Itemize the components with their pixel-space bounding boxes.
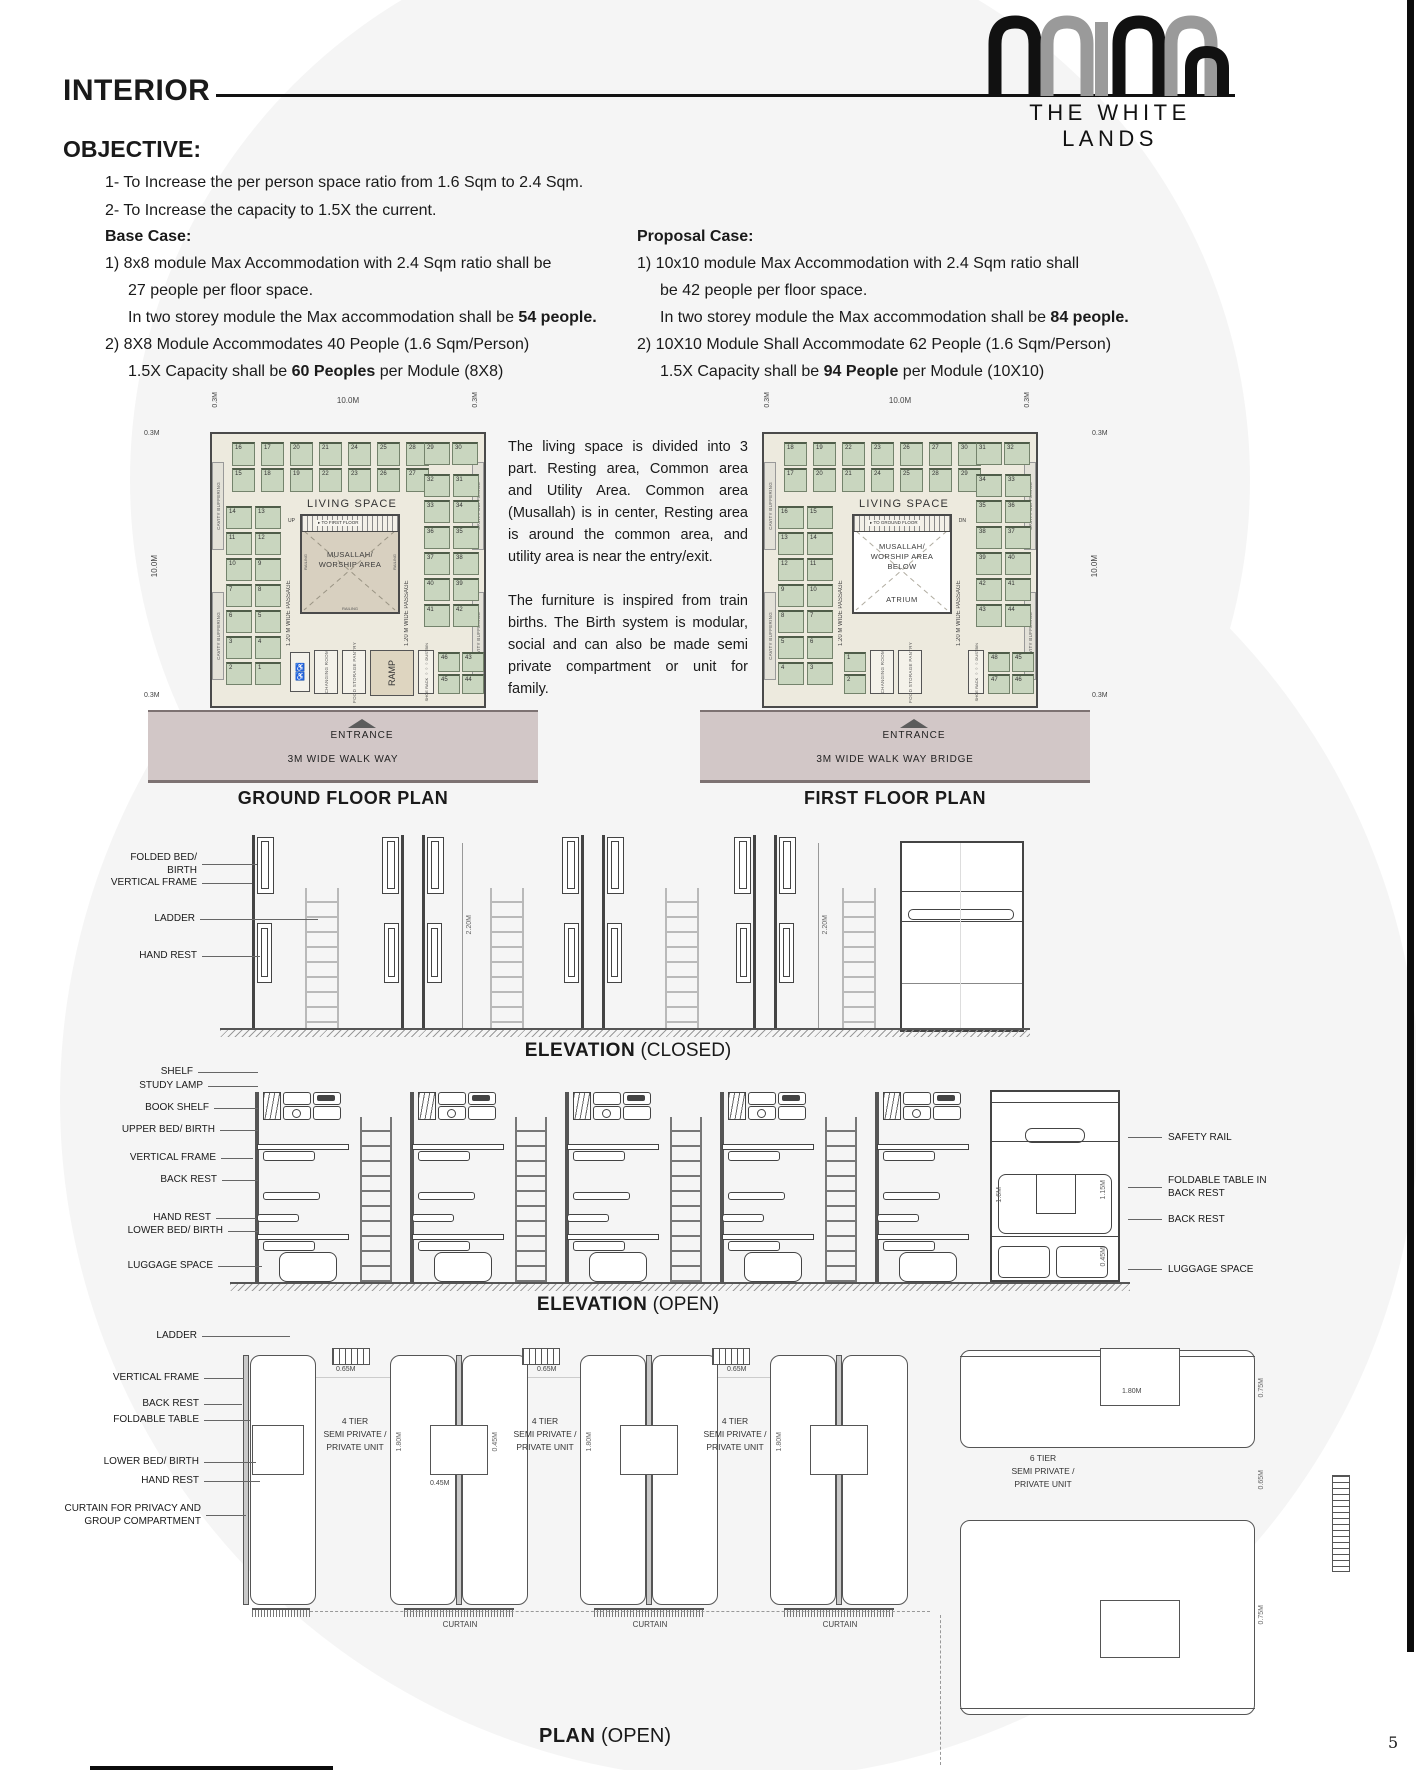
callout-hand-rest: HAND REST — [153, 1212, 211, 1225]
bed-unit: 41 — [1005, 578, 1031, 601]
bed-unit: 10 — [807, 584, 833, 607]
callout-ladder: LADDER — [156, 1330, 197, 1343]
passage-label: 1.20 M WIDE PASSAGE — [956, 526, 962, 646]
bed-unit: 20 — [290, 442, 313, 466]
bed-unit: 31 — [976, 442, 1002, 465]
bed-unit: 21 — [842, 468, 865, 492]
dim-label: 10.0M — [150, 555, 159, 577]
entrance-arrow-icon — [900, 719, 928, 728]
dim-label: 1.80M — [1122, 1388, 1141, 1395]
description-text: The living space is divided into 3 part.… — [508, 436, 748, 700]
upper-bed — [722, 1144, 814, 1150]
callout-upper-bed: UPPER BED/ BIRTH — [122, 1124, 215, 1137]
bed-unit: 18 — [784, 442, 807, 466]
atrium-label: ATRIUM — [854, 595, 950, 604]
bed-unit: 19 — [813, 442, 836, 466]
dim-label: 0.45M — [492, 1432, 499, 1451]
berth-plan — [842, 1355, 908, 1605]
bed-unit: 21 — [319, 442, 342, 466]
dim-label: 2.20M — [822, 915, 829, 934]
ladder-plan — [712, 1348, 750, 1365]
bed-unit: 32 — [424, 474, 450, 497]
dim-label: 0.65M — [336, 1366, 355, 1373]
walkway-label: 3M WIDE WALK WAY — [148, 754, 538, 765]
dim-label: 10.0M — [1090, 555, 1099, 577]
stair-direction: DN — [959, 518, 966, 524]
bed-unit: 13 — [778, 532, 804, 555]
bed-unit: 45 — [438, 674, 460, 694]
bed-unit: 9 — [255, 558, 281, 581]
dim-label: 0.65M — [537, 1366, 556, 1373]
base-case-line3: In two storey module the Max accommodati… — [128, 309, 597, 327]
book-shelf — [263, 1092, 281, 1120]
entrance-label: ENTRANCE — [282, 730, 442, 741]
bed-unit: 45 — [1012, 652, 1034, 672]
railing-label: RAILING — [303, 554, 308, 570]
bed-unit: 15 — [232, 468, 255, 492]
bed-unit: 24 — [348, 442, 371, 466]
proposal-case-line2: be 42 people per floor space. — [660, 282, 867, 300]
callout-folded-bed: FOLDED BED/ BIRTH — [110, 852, 197, 877]
back-rest — [883, 1192, 940, 1200]
back-rest — [263, 1192, 320, 1200]
lower-bed — [722, 1234, 814, 1240]
cavity-buffer: CAVITY BUFFERING — [212, 462, 224, 550]
bed-unit: 23 — [348, 468, 371, 492]
bed-unit: 6 — [226, 610, 252, 633]
dim-label: 0.3M — [764, 392, 771, 408]
dim-label: 1.80M — [396, 1432, 403, 1451]
closed-bunk-post — [590, 835, 626, 1028]
bed-unit: 38 — [976, 526, 1002, 549]
berth-plan — [770, 1355, 836, 1605]
proposal-case-line4: 2) 10X10 Module Shall Accommodate 62 Peo… — [637, 336, 1111, 354]
ladder — [825, 1117, 857, 1282]
bed-unit: 17 — [784, 468, 807, 492]
proposal-case-heading: Proposal Case: — [637, 228, 753, 246]
ramp: RAMP — [370, 650, 414, 696]
bed-unit: 27 — [929, 442, 952, 466]
bed-unit: 44 — [1005, 604, 1031, 627]
dim-label: 0.3M — [144, 692, 160, 699]
dim-label: 0.3M — [1092, 430, 1108, 437]
bed-column-right: 323133343635373840394142 — [424, 474, 479, 627]
bed-unit: 37 — [1005, 526, 1031, 549]
walkway-band: ENTRANCE 3M WIDE WALK WAY BRIDGE — [700, 710, 1090, 783]
bed-unit: 5 — [778, 636, 804, 659]
first-floor-plan: 0.3M 10.0M 0.3M 0.3M 10.0M 0.3M CAVITY B… — [700, 390, 1100, 835]
living-space-label: LIVING SPACE — [824, 498, 984, 510]
lower-bed — [412, 1234, 504, 1240]
food-storage-pantry: FOOD STORAGE PANTRY — [342, 650, 366, 694]
dim-label: 0.65M — [727, 1366, 746, 1373]
bed-column-left: 1413111210978653421 — [226, 506, 281, 685]
ladder — [515, 1117, 547, 1282]
changing-room: CHANGING ROOM — [314, 650, 338, 694]
mina-logo-icon — [985, 12, 1235, 96]
lower-bed — [877, 1234, 969, 1240]
bed-unit: 40 — [1005, 552, 1031, 575]
berth-plan — [652, 1355, 718, 1605]
dim-label: 10.0M — [790, 396, 1010, 405]
luggage-box — [434, 1252, 492, 1282]
bed-unit: 1 — [844, 652, 866, 672]
bed-unit: 14 — [807, 532, 833, 555]
living-space-label: LIVING SPACE — [272, 498, 432, 510]
proposal-case-line5: 1.5X Capacity shall be 94 People per Mod… — [660, 363, 1044, 381]
bed-unit: 3 — [226, 636, 252, 659]
curtain-label: CURTAIN — [610, 1620, 690, 1629]
bed-unit: 34 — [453, 500, 479, 523]
ground-hatch — [220, 1030, 1030, 1037]
musallah-area: TO FIRST FLOOR UP MUSALLAH/ WORSHIP AREA… — [300, 514, 400, 614]
bed-unit: 2 — [844, 674, 866, 694]
bed-pair: 4546 — [1012, 652, 1034, 694]
bed-column-right: 343335363837394042414344 — [976, 474, 1031, 627]
elevation-open-title: ELEVATION (OPEN) — [110, 1294, 1146, 1316]
bed-unit: 36 — [1005, 500, 1031, 523]
bed-unit: 8 — [255, 584, 281, 607]
food-storage-pantry: FOOD STORAGE PANTRY — [898, 650, 922, 694]
ladder-plan — [522, 1348, 560, 1365]
bed-unit: 39 — [453, 578, 479, 601]
unit-4-tier-label: 4 TIERSEMI PRIVATE /PRIVATE UNIT — [318, 1415, 392, 1453]
bed-pair: 4344 — [462, 652, 484, 694]
lower-bed — [567, 1234, 659, 1240]
bed-unit: 36 — [424, 526, 450, 549]
ladder-plan — [332, 1348, 370, 1365]
proposal-case-line3: In two storey module the Max accommodati… — [660, 309, 1129, 327]
elevation-closed-drawing: FOLDED BED/ BIRTH VERTICAL FRAME LADDER … — [110, 835, 1350, 1070]
callout-curtain: CURTAIN FOR PRIVACY ANDGROUP COMPARTMENT — [64, 1503, 201, 1528]
entrance-label: ENTRANCE — [834, 730, 994, 741]
objective-heading: OBJECTIVE: — [63, 136, 201, 163]
bed-unit: 7 — [226, 584, 252, 607]
plan-open-drawing: LADDER VERTICAL FRAME BACK REST FOLDABLE… — [60, 1320, 1410, 1768]
curtain-label: CURTAIN — [420, 1620, 500, 1629]
bed-unit: 46 — [438, 652, 460, 672]
bed-unit: 26 — [377, 468, 400, 492]
closed-cabinet-module — [900, 841, 1024, 1032]
bunk-module-open — [410, 1092, 506, 1282]
dim-label: 0.45M — [1100, 1247, 1107, 1266]
brand-tagline: THE WHITE LANDS — [985, 100, 1235, 152]
bed-pair: 4847 — [988, 652, 1010, 694]
bed-unit: 32 — [1004, 442, 1030, 465]
bed-pair: 12 — [844, 652, 866, 694]
callout-lower-bed: LOWER BED/ BIRTH — [128, 1225, 223, 1238]
bed-unit: 39 — [976, 552, 1002, 575]
stair-direction: UP — [288, 518, 295, 524]
upper-bed — [412, 1144, 504, 1150]
bed-unit: 26 — [900, 442, 923, 466]
dim-label: 0.3M — [1024, 392, 1031, 408]
shoe-rack-dustbin: SHOE RACK ○○○ DUSTBIN — [968, 650, 984, 694]
callout-shelf: SHELF — [161, 1066, 193, 1079]
callout-foldable-table: FOLDABLE TABLE IN BACK REST — [1168, 1174, 1288, 1200]
bunk-module-open — [720, 1092, 816, 1282]
passage-label: 1.20 M WIDE PASSAGE — [838, 526, 844, 646]
back-rest — [418, 1192, 475, 1200]
ground-hatch — [230, 1284, 1130, 1291]
dim-label: 0.65M — [1258, 1470, 1265, 1489]
callout-back-rest: BACK REST — [142, 1398, 199, 1411]
railing-label: RAILING — [302, 606, 398, 611]
bunk-module-open — [255, 1092, 351, 1282]
right-edge-bar — [1407, 0, 1414, 1652]
unit-6-tier-label: 6 TIERSEMI PRIVATE /PRIVATE UNIT — [988, 1452, 1098, 1490]
dim-label: 0.3M — [472, 392, 479, 408]
bed-unit: 4 — [255, 636, 281, 659]
bed-unit: 23 — [871, 442, 894, 466]
bed-unit: 17 — [261, 442, 284, 466]
hand-rest — [412, 1214, 454, 1222]
unit-4-tier-label: 4 TIERSEMI PRIVATE /PRIVATE UNIT — [508, 1415, 582, 1453]
callout-foldable-table: FOLDABLE TABLE — [113, 1414, 199, 1427]
foldable-table — [1100, 1348, 1180, 1406]
bed-unit: 1 — [255, 662, 281, 685]
foldable-table — [810, 1425, 868, 1475]
stair-label: TO FIRST FLOOR — [316, 520, 361, 526]
bed-unit: 12 — [255, 532, 281, 555]
dim-label: 1.80M — [586, 1432, 593, 1451]
callout-luggage-space: LUGGAGE SPACE — [128, 1260, 213, 1273]
bed-unit: 5 — [255, 610, 281, 633]
bed-unit: 8 — [778, 610, 804, 633]
closed-bunk-post — [410, 835, 446, 1028]
bed-unit: 33 — [1005, 474, 1031, 497]
ladder — [842, 888, 876, 1028]
bed-unit: 12 — [778, 558, 804, 581]
passage-label: 1.20 M WIDE PASSAGE — [404, 526, 410, 646]
elevation-open-drawing: SHELF STUDY LAMP BOOK SHELF UPPER BED/ B… — [110, 1062, 1410, 1312]
bed-unit: 42 — [453, 604, 479, 627]
bed-unit: 4 — [778, 662, 804, 685]
book-shelf — [573, 1092, 591, 1120]
bed-unit: 40 — [424, 578, 450, 601]
callout-study-lamp: STUDY LAMP — [139, 1080, 203, 1093]
bed-unit: 37 — [424, 552, 450, 575]
bed-unit: 10 — [226, 558, 252, 581]
walkway-band: ENTRANCE 3M WIDE WALK WAY — [148, 710, 538, 783]
luggage-box — [589, 1252, 647, 1282]
luggage-box — [744, 1252, 802, 1282]
dim-label: 1.80M — [776, 1432, 783, 1451]
bed-unit: 35 — [453, 526, 479, 549]
accessible-wc-icon: ♿♿ — [290, 652, 310, 692]
hand-rest — [722, 1214, 764, 1222]
bed-unit: 11 — [807, 558, 833, 581]
ground-floor-plan-title: GROUND FLOOR PLAN — [148, 788, 538, 809]
atrium-area: TO GROUND FLOOR DN MUSALLAH/ WORSHIP ARE… — [852, 514, 952, 614]
plan-open-title: PLAN (OPEN) — [455, 1725, 755, 1748]
bed-pair: 3132 — [976, 442, 1030, 465]
callout-hand-rest: HAND REST — [139, 950, 197, 963]
changing-room: CHANGING ROOM — [870, 650, 894, 694]
bottom-edge-bar — [90, 1766, 333, 1770]
callout-vertical-frame: VERTICAL FRAME — [130, 1152, 216, 1165]
ladder-plan — [1332, 1475, 1350, 1572]
shoe-rack-dustbin: SHOE RACK ○○○ DUSTBIN — [418, 650, 434, 694]
cavity-buffer: CAVITY BUFFERING — [764, 592, 776, 680]
callout-vertical-frame: VERTICAL FRAME — [113, 1372, 199, 1385]
base-case-line2: 27 people per floor space. — [128, 282, 313, 300]
ladder — [670, 1117, 702, 1282]
bed-unit: 20 — [813, 468, 836, 492]
bed-unit: 7 — [807, 610, 833, 633]
walkway-label: 3M WIDE WALK WAY BRIDGE — [700, 754, 1090, 765]
bed-unit: 14 — [226, 506, 252, 529]
bed-unit: 30 — [452, 442, 478, 465]
proposal-case-line1: 1) 10x10 module Max Accommodation with 2… — [637, 255, 1079, 273]
foldable-table — [430, 1425, 488, 1475]
curtain — [594, 1608, 704, 1617]
bed-pair: 2930 — [424, 442, 478, 465]
dim-label: 0.45M — [430, 1480, 449, 1487]
berth-plan — [462, 1355, 528, 1605]
ground-floor-plan: 0.3M 10.0M 0.3M 0.3M 10.0M 0.3M CAVITY B… — [148, 390, 548, 835]
bed-unit: 29 — [424, 442, 450, 465]
book-shelf — [418, 1092, 436, 1120]
musallah-below-label: MUSALLAH/ WORSHIP AREA BELOW — [854, 542, 950, 572]
curtain-label: CURTAIN — [800, 1620, 880, 1629]
curtain — [404, 1608, 514, 1617]
lower-bed — [257, 1234, 349, 1240]
bed-unit: 22 — [319, 468, 342, 492]
upper-bed — [567, 1144, 659, 1150]
callout-safety-rail: SAFETY RAIL — [1168, 1132, 1232, 1143]
bed-unit: 2 — [226, 662, 252, 685]
callout-hand-rest: HAND REST — [141, 1475, 199, 1488]
dim-label: 2.20M — [466, 915, 473, 934]
upper-bed — [877, 1144, 969, 1150]
bed-unit: 41 — [424, 604, 450, 627]
bunk-module-open — [875, 1092, 971, 1282]
bed-unit: 16 — [778, 506, 804, 529]
bunk-module-open — [565, 1092, 661, 1282]
entrance-arrow-icon — [348, 719, 376, 728]
unit-4-tier-label: 4 TIERSEMI PRIVATE /PRIVATE UNIT — [698, 1415, 772, 1453]
floor-slab: CAVITY BUFFERING CAVITY BUFFERING CAVITY… — [210, 432, 486, 708]
foldable-table — [1036, 1174, 1076, 1214]
bed-unit: 16 — [232, 442, 255, 466]
folded-table-top — [908, 909, 1014, 920]
bed-unit: 9 — [778, 584, 804, 607]
bed-unit: 47 — [988, 674, 1010, 694]
objective-goal-2: 2- To Increase the capacity to 1.5X the … — [105, 202, 436, 220]
bed-unit: 43 — [462, 652, 484, 672]
foldable-table — [1100, 1600, 1180, 1658]
dim-label: 0.75M — [1258, 1378, 1265, 1397]
book-shelf — [728, 1092, 746, 1120]
bed-unit: 31 — [453, 474, 479, 497]
bed-unit: 22 — [842, 442, 865, 466]
dim-label: 0.75M — [1258, 1605, 1265, 1624]
objective-goal-1: 1- To Increase the per person space rati… — [105, 174, 583, 192]
bed-unit: 6 — [807, 636, 833, 659]
cavity-buffer: CAVITY BUFFERING — [764, 462, 776, 550]
base-case-line4: 2) 8X8 Module Accommodates 40 People (1.… — [105, 336, 529, 354]
bed-unit: 46 — [1012, 674, 1034, 694]
hand-rest — [567, 1214, 609, 1222]
callout-back-rest: BACK REST — [1168, 1214, 1225, 1225]
bed-unit: 28 — [929, 468, 952, 492]
curtain — [252, 1608, 310, 1617]
first-floor-plan-title: FIRST FLOOR PLAN — [700, 788, 1090, 809]
base-case-line1: 1) 8x8 module Max Accommodation with 2.4… — [105, 255, 551, 273]
callout-back-rest: BACK REST — [160, 1174, 217, 1187]
bed-unit: 44 — [462, 674, 484, 694]
portfolio-page: INTERIOR THE WHITE LANDS OBJECTIVE: 1- T… — [0, 0, 1416, 1770]
ladder — [665, 888, 699, 1028]
callout-luggage-space: LUGGAGE SPACE — [1168, 1264, 1253, 1275]
dim-label: 1.6M — [996, 1187, 1003, 1203]
callout-book-shelf: BOOK SHELF — [145, 1102, 209, 1115]
dim-label: 0.3M — [1092, 692, 1108, 699]
base-case-line5: 1.5X Capacity shall be 60 Peoples per Mo… — [128, 363, 503, 381]
railing-label: RAILING — [392, 554, 397, 570]
bed-unit: 19 — [290, 468, 313, 492]
bed-pair: 4645 — [438, 652, 460, 694]
page-number: 5 — [1388, 1733, 1398, 1752]
callout-ladder: LADDER — [154, 913, 195, 926]
dim-label: 0.3M — [144, 430, 160, 437]
page-title: INTERIOR — [63, 74, 210, 108]
foldable-table — [252, 1425, 304, 1475]
ladder — [490, 888, 524, 1028]
elevation-closed-title: ELEVATION (CLOSED) — [110, 1040, 1146, 1062]
foldable-table — [620, 1425, 678, 1475]
bed-unit: 25 — [377, 442, 400, 466]
dim-label: 0.3M — [212, 392, 219, 408]
callout-vertical-frame: VERTICAL FRAME — [111, 877, 197, 890]
bed-unit: 3 — [807, 662, 833, 685]
hand-rest — [257, 1214, 299, 1222]
musallah-label: MUSALLAH/ WORSHIP AREA — [302, 550, 398, 570]
bed-unit: 18 — [261, 468, 284, 492]
bed-unit: 42 — [976, 578, 1002, 601]
bed-row-top: 1617202124252815181922232627 — [232, 442, 429, 492]
bunk-module-side-view: 1.6M 1.15M 0.45M — [990, 1090, 1120, 1282]
upper-bed — [257, 1144, 349, 1150]
luggage-box — [279, 1252, 337, 1282]
luggage-box — [998, 1246, 1050, 1278]
bed-unit: 25 — [900, 468, 923, 492]
cavity-buffer: CAVITY BUFFERING — [212, 592, 224, 680]
back-rest — [573, 1192, 630, 1200]
passage-label: 1.20 M WIDE PASSAGE — [286, 526, 292, 646]
ladder — [305, 888, 339, 1028]
callout-lower-bed: LOWER BED/ BIRTH — [104, 1456, 199, 1469]
dim-label: 10.0M — [238, 396, 458, 405]
dim-label: 1.15M — [1100, 1180, 1107, 1199]
berth-plan — [580, 1355, 646, 1605]
floor-slab: CAVITY BUFFERING CAVITY BUFFERING CAVITY… — [762, 432, 1038, 708]
book-shelf — [883, 1092, 901, 1120]
bed-unit: 34 — [976, 474, 1002, 497]
bed-unit: 43 — [976, 604, 1002, 627]
stair-label: TO GROUND FLOOR — [868, 520, 920, 526]
bed-unit: 11 — [226, 532, 252, 555]
luggage-box — [899, 1252, 957, 1282]
bed-unit: 38 — [453, 552, 479, 575]
back-rest — [728, 1192, 785, 1200]
base-case-heading: Base Case: — [105, 228, 191, 246]
bed-unit: 24 — [871, 468, 894, 492]
hand-rest — [877, 1214, 919, 1222]
closed-bunk-post — [762, 835, 798, 1028]
ladder — [360, 1117, 392, 1282]
